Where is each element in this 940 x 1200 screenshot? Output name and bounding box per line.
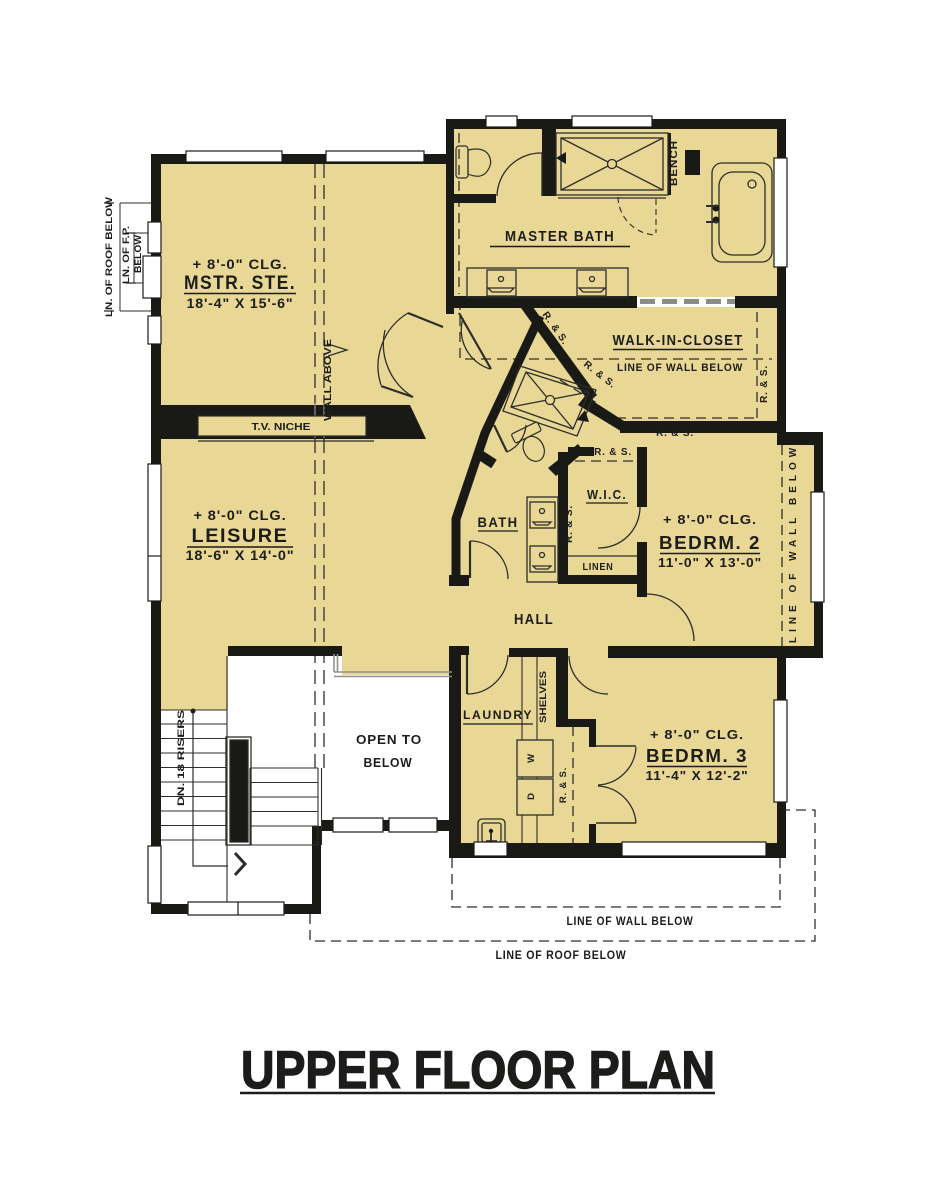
svg-text:11'-4" X 12'-2": 11'-4" X 12'-2" bbox=[646, 768, 749, 783]
svg-text:R. & S.: R. & S. bbox=[564, 505, 575, 543]
svg-text:BELOW: BELOW bbox=[364, 755, 413, 770]
svg-text:LINE OF ROOF BELOW: LINE OF ROOF BELOW bbox=[496, 950, 627, 962]
svg-text:DN. 18 RISERS: DN. 18 RISERS bbox=[176, 710, 186, 806]
svg-text:+ 8'-0" CLG.: + 8'-0" CLG. bbox=[663, 512, 757, 527]
svg-text:UPPER FLOOR PLAN: UPPER FLOOR PLAN bbox=[241, 1041, 715, 1100]
svg-text:R. & S.: R. & S. bbox=[759, 365, 770, 403]
svg-text:W: W bbox=[526, 753, 537, 763]
svg-text:11'-0" X 13'-0": 11'-0" X 13'-0" bbox=[658, 555, 762, 570]
svg-text:BENCH: BENCH bbox=[669, 140, 680, 186]
svg-text:MSTR. STE.: MSTR. STE. bbox=[184, 273, 296, 294]
svg-text:HALL: HALL bbox=[514, 611, 554, 628]
svg-text:R. & S.: R. & S. bbox=[558, 767, 569, 803]
svg-text:18'-4" X 15'-6": 18'-4" X 15'-6" bbox=[187, 296, 294, 311]
svg-text:OPEN TO: OPEN TO bbox=[356, 732, 422, 747]
svg-text:LN. OF ROOF BELOW: LN. OF ROOF BELOW bbox=[104, 197, 115, 317]
svg-text:+ 8'-0" CLG.: + 8'-0" CLG. bbox=[193, 257, 288, 272]
svg-text:18'-6" X 14'-0": 18'-6" X 14'-0" bbox=[186, 548, 295, 563]
svg-text:BELOW: BELOW bbox=[133, 235, 144, 273]
svg-text:D: D bbox=[526, 792, 537, 800]
svg-text:BEDRM. 3: BEDRM. 3 bbox=[646, 746, 748, 766]
svg-text:LINEN: LINEN bbox=[583, 561, 614, 573]
svg-text:SHELVES: SHELVES bbox=[538, 671, 548, 723]
svg-text:WALL ABOVE: WALL ABOVE bbox=[323, 339, 334, 421]
svg-text:BEDRM. 2: BEDRM. 2 bbox=[659, 533, 761, 553]
svg-text:W.I.C.: W.I.C. bbox=[587, 487, 627, 502]
svg-text:R. & S.: R. & S. bbox=[594, 447, 632, 458]
svg-text:WALK-IN-CLOSET: WALK-IN-CLOSET bbox=[613, 333, 744, 349]
svg-text:LN. OF F.P.: LN. OF F.P. bbox=[121, 226, 132, 284]
svg-text:LINE OF WALL BELOW: LINE OF WALL BELOW bbox=[567, 916, 694, 928]
svg-text:LAUNDRY: LAUNDRY bbox=[463, 708, 533, 722]
svg-text:MASTER BATH: MASTER BATH bbox=[505, 228, 615, 245]
svg-text:LEISURE: LEISURE bbox=[192, 526, 289, 547]
svg-text:+ 8'-0" CLG.: + 8'-0" CLG. bbox=[194, 508, 287, 523]
svg-text:LINE OF WALL BELOW: LINE OF WALL BELOW bbox=[617, 362, 743, 374]
svg-text:T.V. NICHE: T.V. NICHE bbox=[252, 422, 311, 433]
svg-text:R. & S.: R. & S. bbox=[656, 428, 694, 439]
svg-text:+ 8'-0" CLG.: + 8'-0" CLG. bbox=[650, 727, 744, 742]
svg-text:BATH: BATH bbox=[478, 514, 519, 530]
